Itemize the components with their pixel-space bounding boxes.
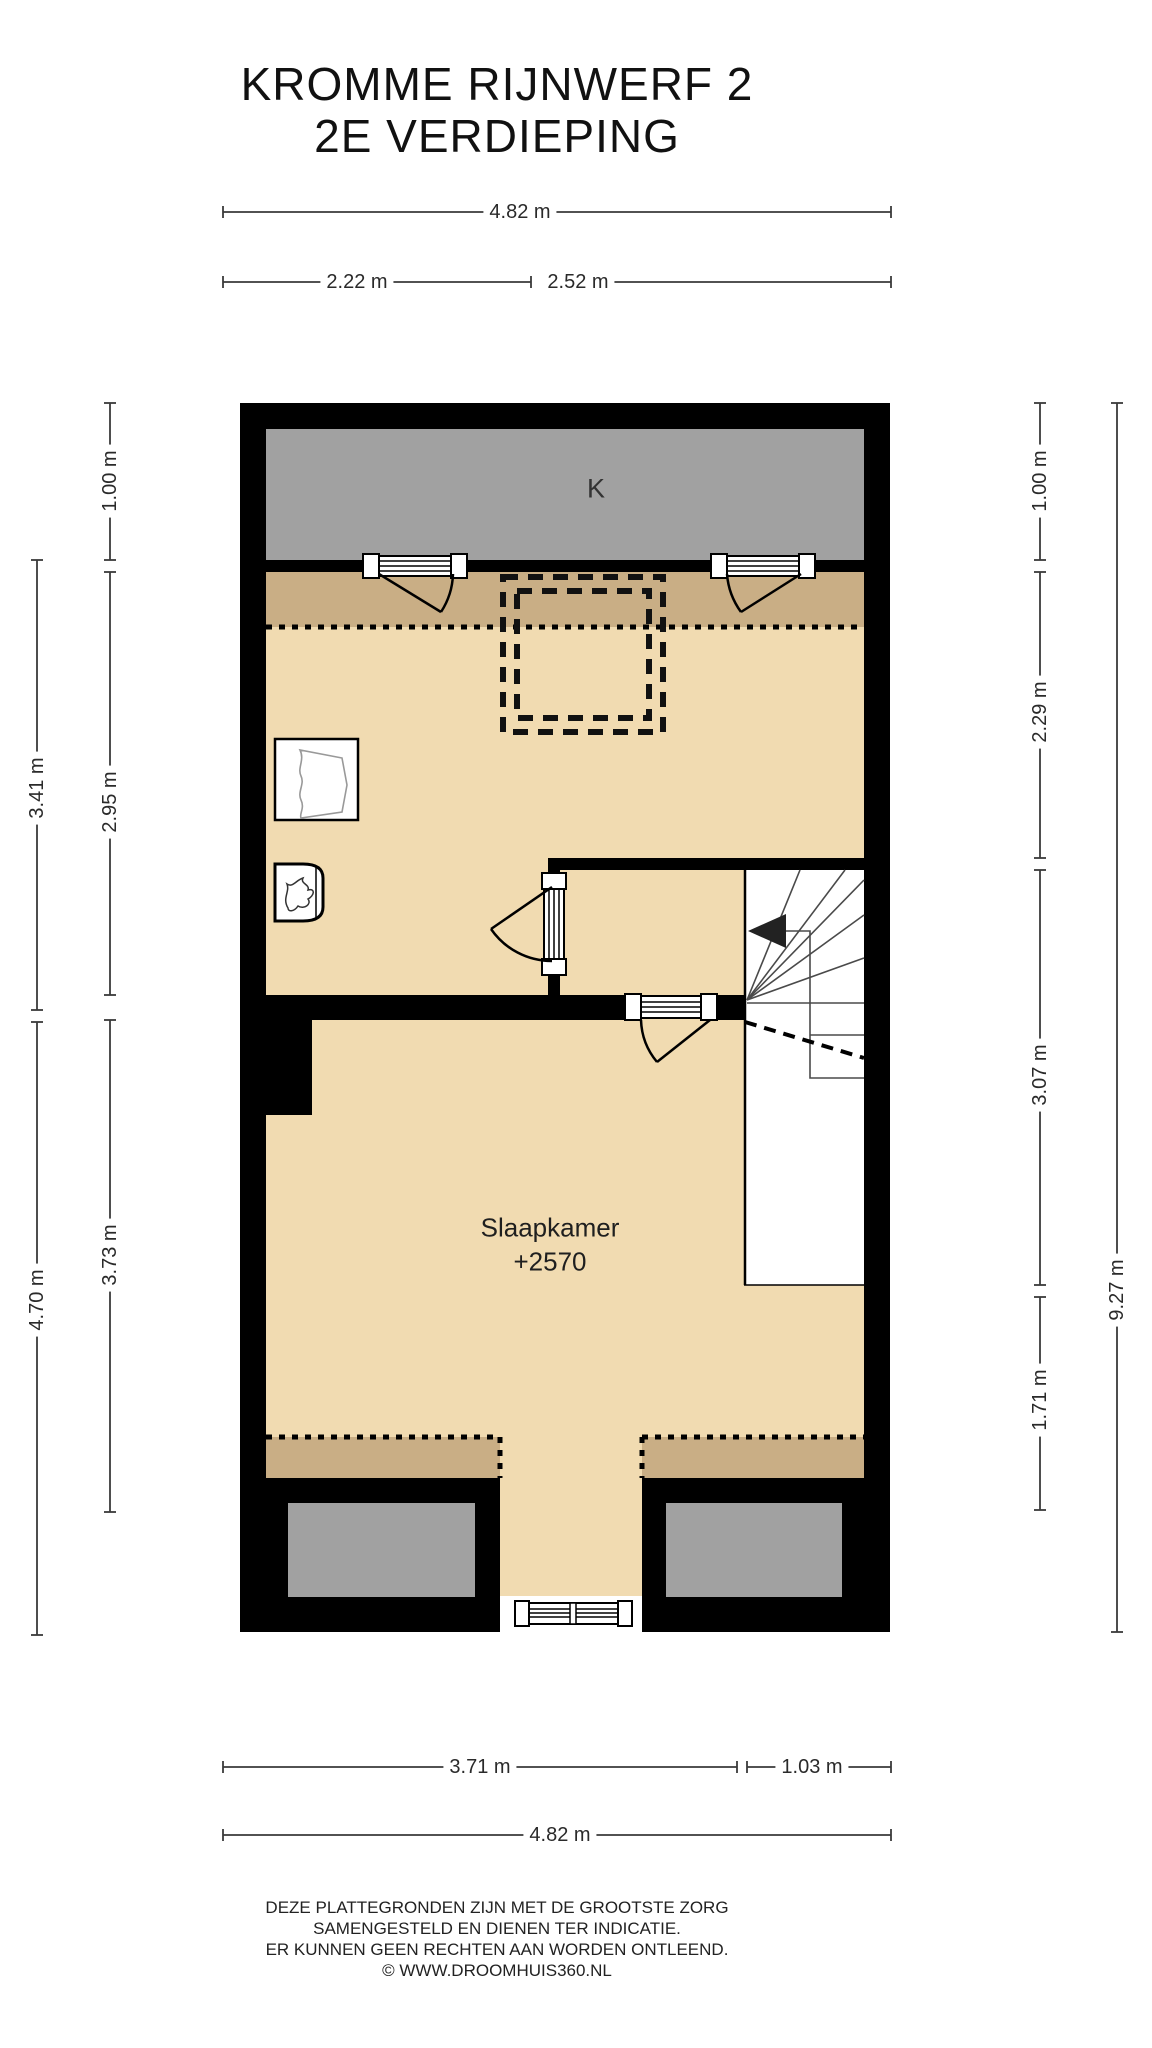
dim-top-left: 2.22 m [320,272,393,292]
footer-line-2: SAMENGESTELD EN DIENEN TER INDICATIE. [313,1919,681,1939]
chimney-block [266,995,312,1115]
footer-copyright: © WWW.DROOMHUIS360.NL [382,1961,612,1981]
dim-left-lower-inner: 3.73 m [100,1218,120,1291]
dim-right-closet: 1.00 m [1030,444,1050,517]
dim-top-right: 2.52 m [541,272,614,292]
dim-right-total: 9.27 m [1107,1253,1127,1326]
dim-top-total: 4.82 m [483,202,556,222]
dim-left-upper-inner: 2.95 m [100,765,120,838]
dormer-window [515,1601,632,1626]
storage-left [288,1503,475,1597]
low-headroom-strip-top [266,572,864,627]
dim-left-lower-outer: 4.70 m [27,1263,47,1336]
dim-right-stairs: 3.07 m [1030,1038,1050,1111]
dim-right-lower: 1.71 m [1030,1363,1050,1436]
bedroom-wall-right [717,995,744,1020]
low-headroom-strip-bottom-right [642,1437,864,1478]
bedroom-level-label: +2570 [513,1247,586,1278]
dim-right-upper: 2.29 m [1030,675,1050,748]
storage-right [666,1503,842,1597]
floorplan-drawing [0,0,1152,2048]
dim-bottom-total: 4.82 m [523,1825,596,1845]
bedroom-label: Slaapkamer [481,1213,620,1244]
bedroom-wall-left [266,995,627,1020]
footer-line-3: ER KUNNEN GEEN RECHTEN AAN WORDEN ONTLEE… [266,1940,729,1960]
dim-left-upper-outer: 3.41 m [27,751,47,824]
footer-line-1: DEZE PLATTEGRONDEN ZIJN MET DE GROOTSTE … [265,1898,728,1918]
closet-label: K [587,474,605,505]
dim-bottom-left: 3.71 m [443,1757,516,1777]
low-headroom-strip-bottom-left [266,1437,500,1478]
dim-bottom-right: 1.03 m [775,1757,848,1777]
closet-zone [266,429,864,560]
floorplan-page: KROMME RIJNWERF 2 2E VERDIEPING [0,0,1152,2048]
stair-top-wall [548,858,864,870]
dim-left-closet: 1.00 m [100,444,120,517]
